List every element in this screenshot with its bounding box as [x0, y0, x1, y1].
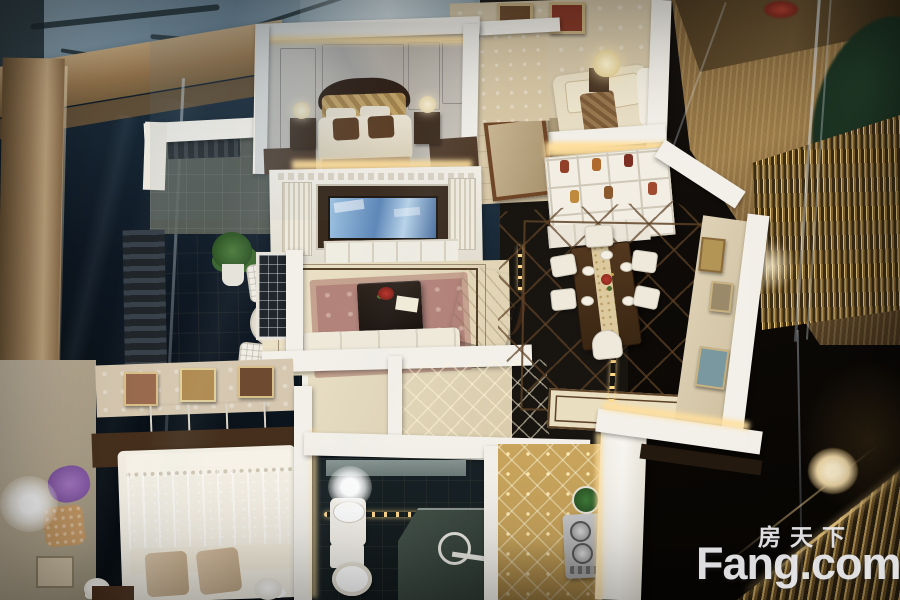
showroom-photo: 房天下 Fang.com	[0, 0, 900, 600]
watermark-logo: Fang.com	[696, 538, 900, 590]
balcony-vent-grill	[168, 139, 241, 160]
dark-box	[92, 586, 134, 600]
dining-chair	[549, 253, 577, 278]
dining-chair	[550, 288, 577, 311]
framed-picture	[694, 346, 729, 390]
led-dot-string	[518, 246, 522, 290]
red-light-reflection	[764, 1, 798, 18]
model-outer-wall	[143, 122, 167, 191]
table-flowers	[378, 287, 394, 300]
framed-picture	[180, 368, 216, 402]
wine-bottle	[570, 190, 579, 203]
wine-bottle	[624, 154, 633, 167]
shower-drain	[438, 532, 471, 565]
dinner-plate	[600, 250, 613, 260]
bed-pillow	[145, 551, 190, 598]
table-book	[395, 296, 419, 313]
wine-bottle	[560, 160, 569, 173]
framed-picture	[238, 366, 274, 398]
model-wall	[286, 250, 303, 354]
crown-molding	[278, 173, 474, 180]
stove-burner	[572, 543, 593, 564]
dining-chair	[631, 249, 659, 273]
bed-pillow	[195, 547, 242, 596]
small-frame	[36, 556, 74, 588]
ceiling-light-reflection	[808, 448, 858, 494]
ceiling-light-reflection	[0, 476, 58, 532]
white-flowers	[254, 578, 282, 600]
plant-pot	[222, 264, 244, 286]
toilet-bowl	[332, 562, 372, 596]
model-wall	[595, 425, 647, 600]
framed-picture	[698, 237, 725, 273]
framed-picture	[708, 281, 733, 313]
wine-bottle	[648, 182, 657, 195]
wine-bottle	[592, 158, 601, 171]
case-corner-pillar	[0, 57, 65, 378]
watermark: 房天下 Fang.com	[688, 512, 900, 600]
table-centerpiece	[601, 274, 612, 285]
glass-tint-overlay	[255, 22, 483, 177]
table-lamp	[593, 50, 620, 77]
stove-knobs	[570, 566, 598, 574]
model-wall	[294, 386, 312, 600]
wine-bottle	[604, 186, 613, 199]
dinner-plate	[581, 296, 594, 306]
wall-pilaster	[282, 182, 312, 256]
dining-chair	[584, 224, 613, 248]
bed-striped-duvet	[127, 467, 292, 551]
stove-burner	[570, 521, 591, 542]
led-strip-glow	[596, 432, 602, 600]
ceiling-light-reflection	[328, 466, 372, 508]
framed-picture	[124, 372, 158, 406]
dinner-plate	[582, 266, 595, 276]
